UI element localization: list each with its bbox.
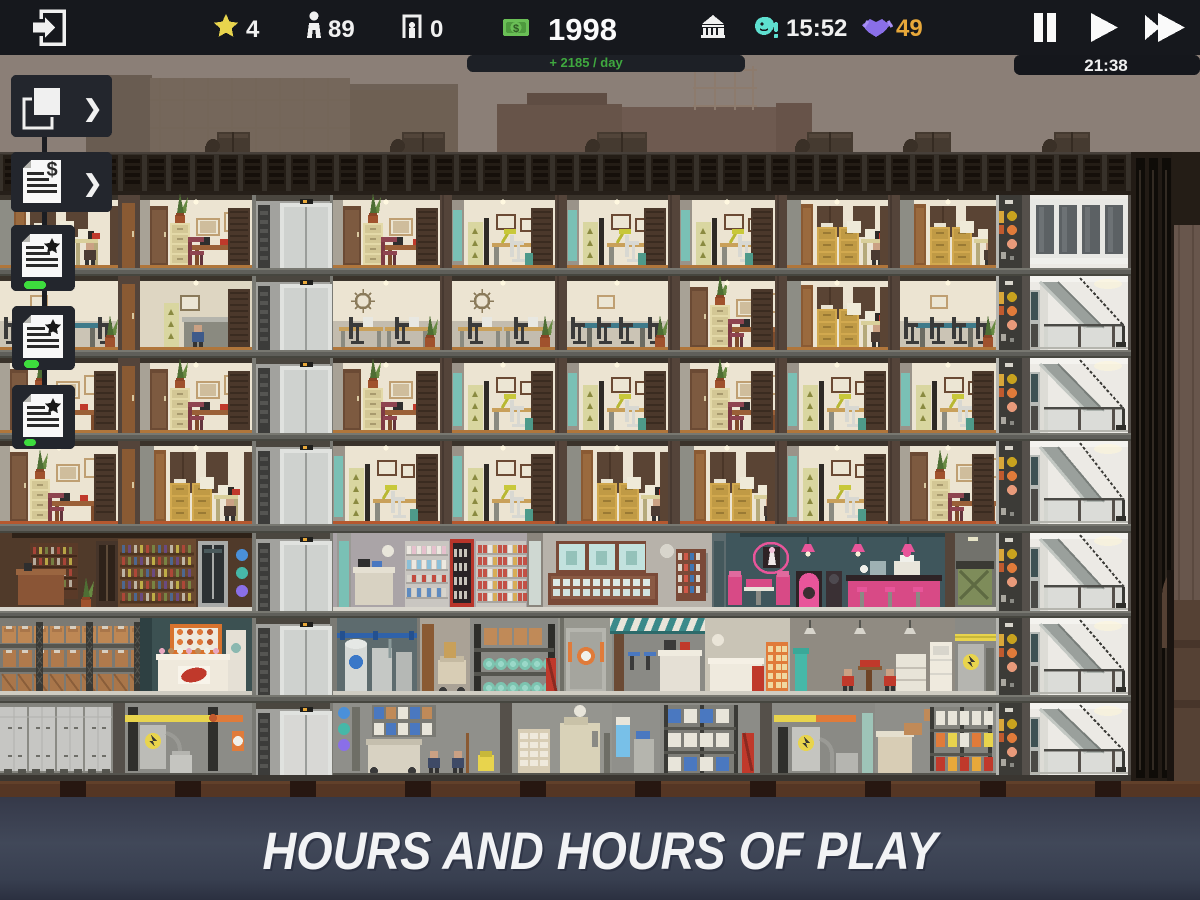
svg-text:15:52: 15:52 <box>786 15 847 42</box>
svg-text:1998: 1998 <box>548 12 617 47</box>
svg-text:4: 4 <box>246 16 260 43</box>
svg-text:89: 89 <box>328 16 355 43</box>
svg-text:21:38: 21:38 <box>1084 56 1127 75</box>
svg-text:49: 49 <box>896 15 923 42</box>
svg-text:HOURS AND HOURS OF PLAY: HOURS AND HOURS OF PLAY <box>263 822 942 881</box>
svg-text:0: 0 <box>430 16 443 43</box>
svg-text:+ 2185 / day: + 2185 / day <box>549 55 623 70</box>
svg-text:$: $ <box>46 159 57 181</box>
svg-text:❯: ❯ <box>83 170 102 197</box>
svg-text:❯: ❯ <box>83 95 102 122</box>
svg-text:$: $ <box>513 23 519 35</box>
